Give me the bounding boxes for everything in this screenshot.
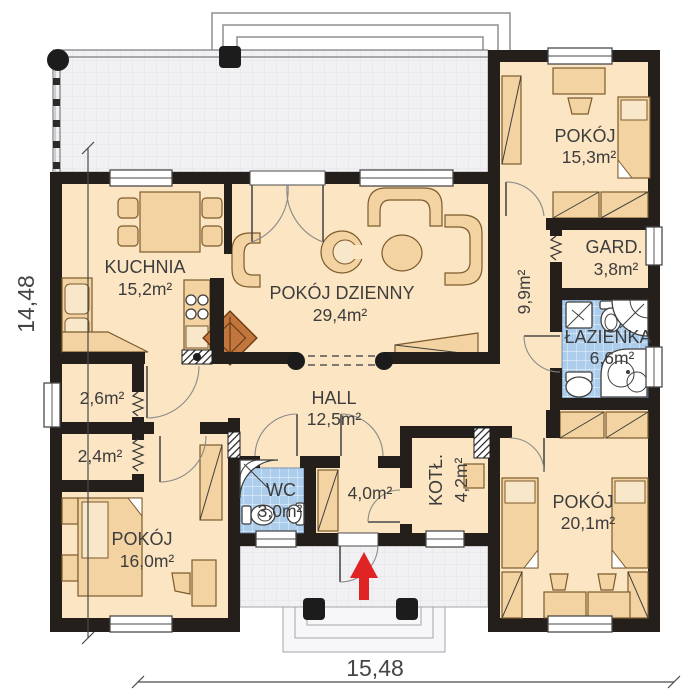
- label-pokoj-dzienny: POKÓJ DZIENNY: [269, 282, 414, 303]
- floor-plan-svg: KUCHNIA 15,2m² POKÓJ DZIENNY 29,4m² HALL…: [0, 0, 700, 700]
- column: [375, 352, 393, 370]
- area-wc: 3,0m²: [258, 501, 303, 521]
- label-pokoj16: POKÓJ: [111, 528, 172, 549]
- window: [548, 616, 612, 632]
- terrace: [47, 46, 488, 172]
- window: [256, 531, 296, 547]
- area-pokoj20: 20,1m²: [561, 513, 616, 533]
- area-schowek-dolny: 2,4m²: [78, 446, 123, 466]
- label-pokoj15: POKÓJ: [554, 125, 615, 146]
- area-hall: 12,5m²: [307, 409, 362, 429]
- dim-height: 14,48: [13, 275, 39, 333]
- window: [646, 227, 662, 265]
- toilet-tank: [242, 506, 251, 524]
- dim-width: 15,48: [346, 655, 404, 681]
- label-lazienka: ŁAZIENKA: [564, 327, 651, 347]
- label-pokoj20: POKÓJ: [552, 491, 613, 512]
- window: [44, 383, 60, 427]
- kitchen-table: [140, 192, 200, 252]
- label-kuchnia: KUCHNIA: [104, 257, 185, 277]
- area-pokoj-dzienny: 29,4m²: [313, 305, 368, 325]
- area-kuchnia: 15,2m²: [118, 279, 173, 299]
- column: [287, 352, 305, 370]
- area-pokoj16: 16,0m²: [120, 551, 175, 571]
- terrace-column: [47, 49, 69, 71]
- area-korytarz: 9,9m²: [514, 269, 534, 314]
- area-pokoj15: 15,3m²: [562, 147, 617, 167]
- terrace-column: [219, 46, 241, 68]
- window: [110, 616, 172, 632]
- label-gard: GARD.: [585, 237, 642, 257]
- area-kotl: 4,2m²: [451, 457, 471, 502]
- window: [110, 170, 172, 186]
- area-wiatrolap: 4,0m²: [348, 483, 393, 503]
- window: [548, 48, 612, 64]
- window: [426, 531, 464, 547]
- window: [360, 170, 453, 186]
- label-kotl: KOTŁ.: [426, 454, 446, 506]
- coffee-table: [382, 235, 422, 271]
- roof-outline: [212, 13, 510, 50]
- label-hall: HALL: [311, 388, 356, 408]
- window: [646, 347, 662, 387]
- area-schowek-gorny: 2,6m²: [80, 388, 125, 408]
- area-lazienka: 6,6m²: [590, 348, 635, 368]
- area-gard: 3,8m²: [594, 259, 639, 279]
- label-wc: WC: [266, 480, 296, 500]
- floor-plan: KUCHNIA 15,2m² POKÓJ DZIENNY 29,4m² HALL…: [0, 0, 700, 700]
